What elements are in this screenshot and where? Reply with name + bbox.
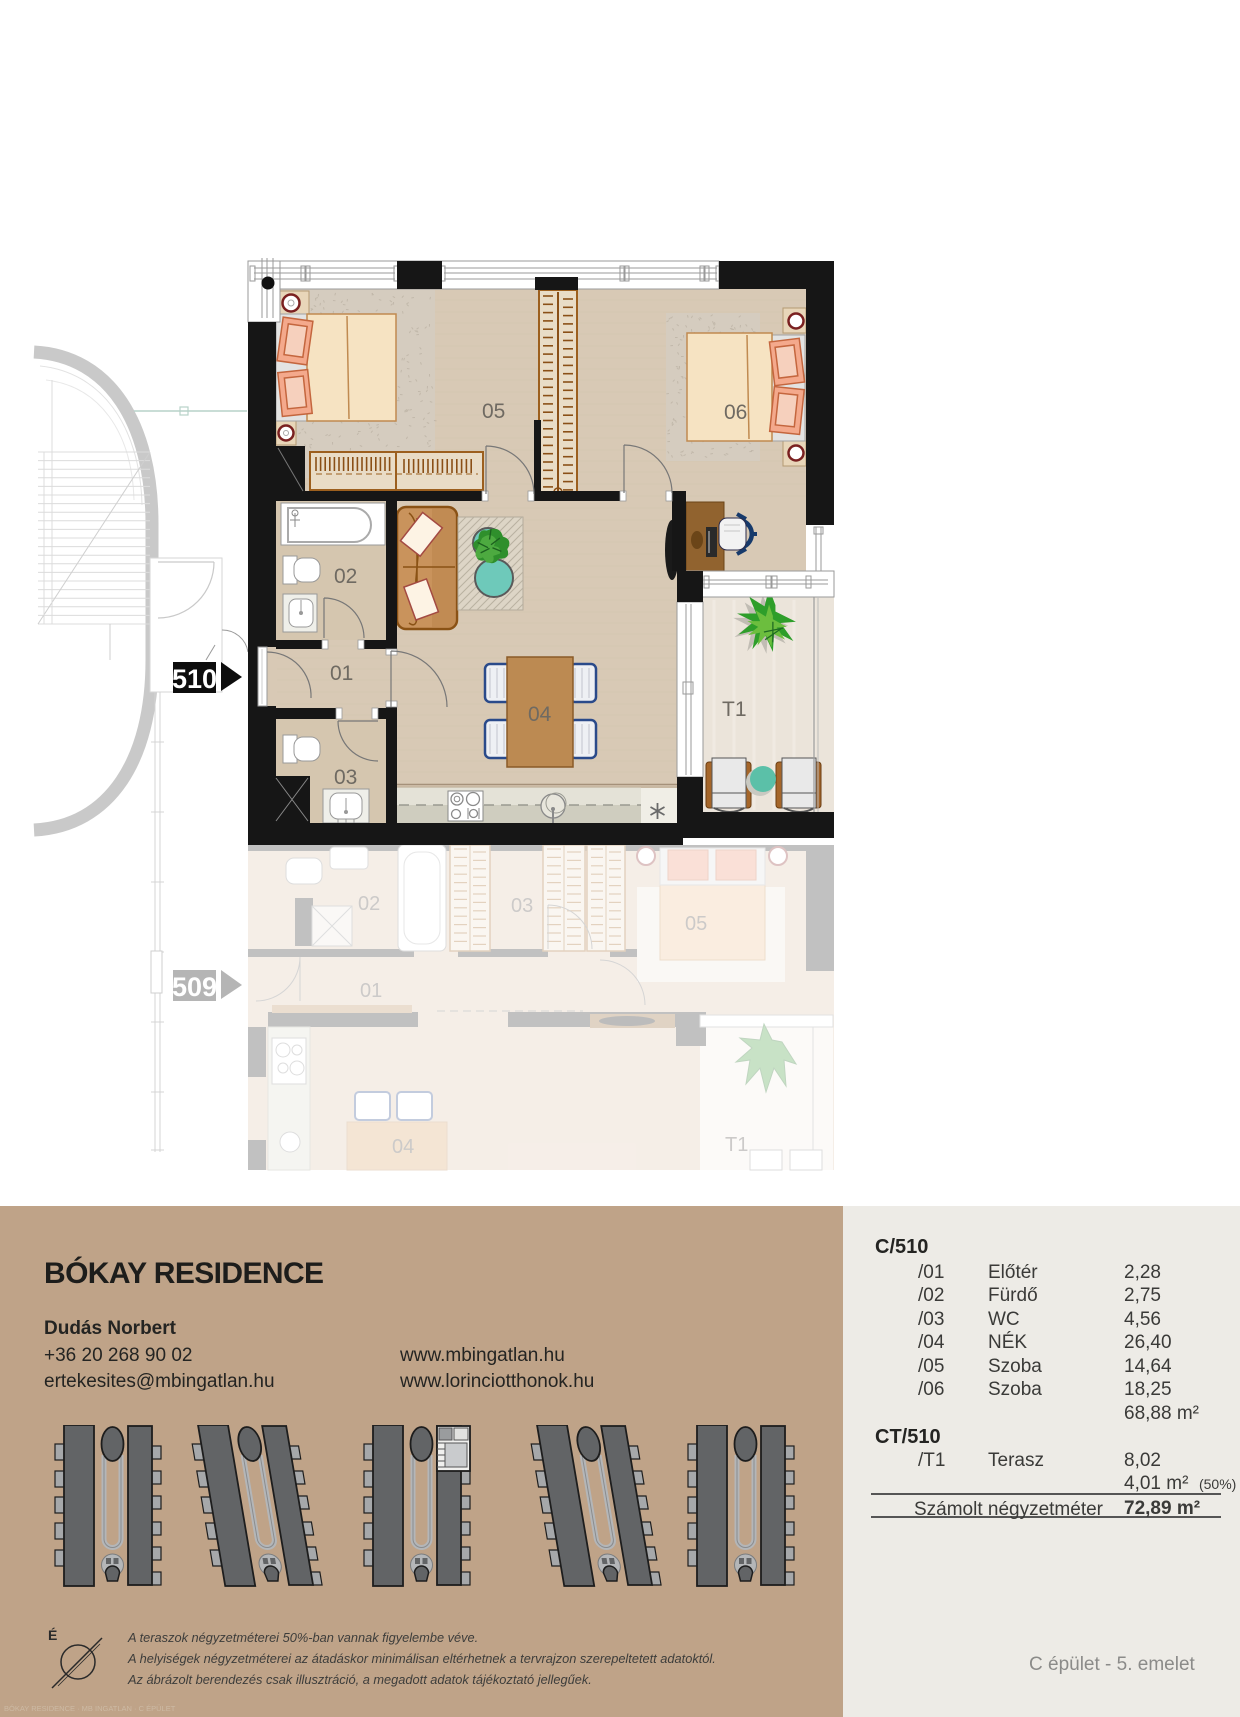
svg-text:05: 05 xyxy=(482,400,505,423)
svg-text:01: 01 xyxy=(360,980,382,1002)
svg-text:03: 03 xyxy=(511,895,533,917)
svg-text:04: 04 xyxy=(392,1136,414,1158)
svg-text:04: 04 xyxy=(528,703,552,726)
svg-text:T1: T1 xyxy=(725,1134,748,1156)
svg-text:02: 02 xyxy=(358,893,380,915)
svg-text:509: 509 xyxy=(172,972,217,1002)
svg-text:T1: T1 xyxy=(722,698,747,721)
svg-text:510: 510 xyxy=(172,664,217,694)
svg-text:03: 03 xyxy=(334,766,357,789)
svg-text:06: 06 xyxy=(724,401,747,424)
svg-text:É: É xyxy=(48,1627,57,1643)
svg-text:02: 02 xyxy=(334,565,357,588)
svg-text:01: 01 xyxy=(330,662,353,685)
svg-text:05: 05 xyxy=(685,913,707,935)
